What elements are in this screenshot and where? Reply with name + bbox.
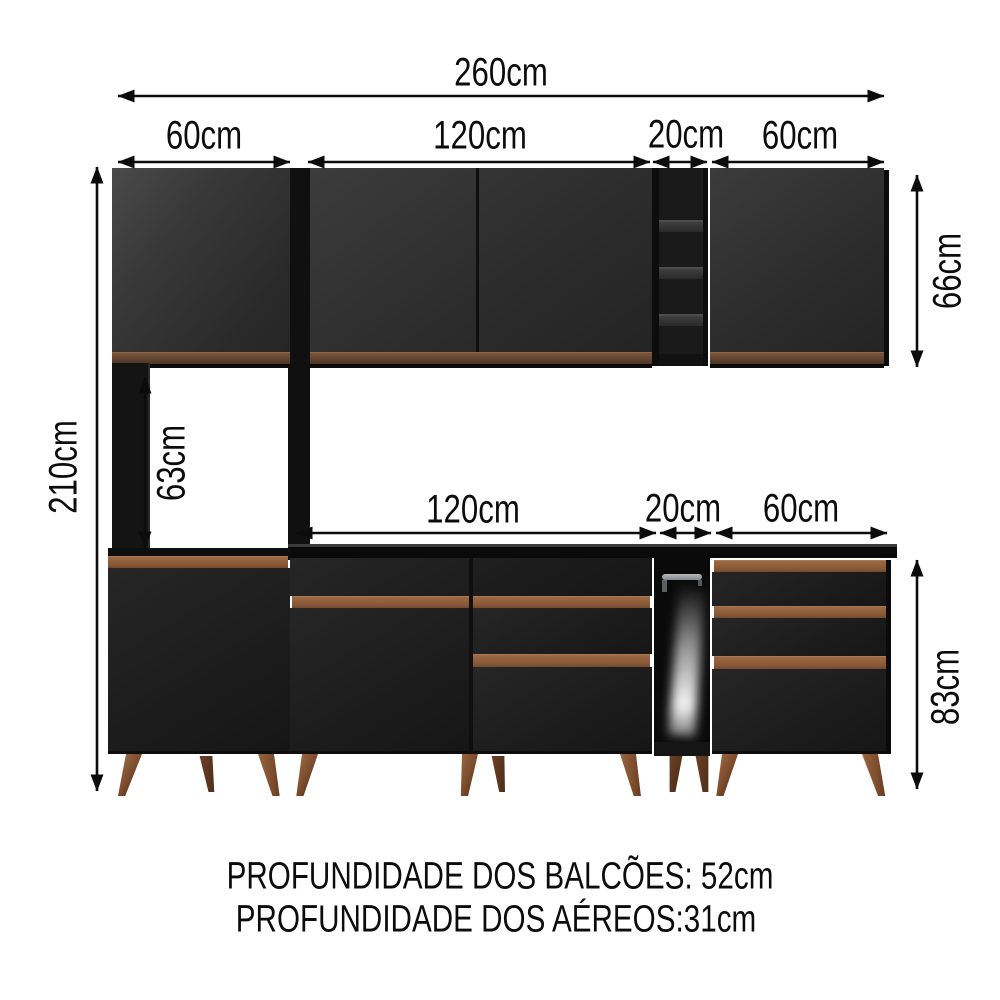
shelf-unit-base (659, 354, 703, 366)
middle-base-handle-strip-lower (473, 654, 650, 668)
middle-base-right-door (473, 667, 652, 754)
dim-tower-opening-height-label: 63cm (150, 414, 195, 512)
towel-rail (662, 574, 702, 580)
dim-base-right-width-label: 60cm (752, 487, 850, 532)
cabinet-leg (860, 754, 892, 796)
shelf-board (659, 220, 703, 232)
upper-middle-door-split (476, 168, 479, 352)
cabinet-leg (490, 756, 510, 792)
depth-note-uppers: PROFUNDIDADE DOS AÉREOS:31cm (162, 899, 829, 942)
dim-niche-width-label: 20cm (634, 487, 732, 532)
dim-upper-cabinet-height-label: 66cm (926, 222, 971, 320)
depth-note-counters: PROFUNDIDADE DOS BALCÕES: 52cm (149, 856, 850, 899)
rail-bracket-left (662, 580, 667, 592)
shelf-board (659, 314, 703, 326)
cabinet-leg (455, 754, 480, 796)
kitchen-cabinet-dimension-diagram: 260cm 60cm 120cm 20cm 60cm 120cm 20cm 60… (0, 0, 1000, 1000)
upper-left-cabinet-door (112, 168, 290, 352)
right-base-drawer-2 (712, 618, 888, 656)
middle-base-split (469, 558, 473, 754)
tower-side-panel (288, 168, 310, 560)
dim-upper-left-width-label: 60cm (155, 114, 253, 159)
upper-right-cabinet-door (710, 168, 884, 352)
tower-base-door (108, 568, 290, 754)
cabinet-leg (618, 754, 648, 796)
cabinet-leg (290, 754, 320, 796)
niche (654, 558, 710, 742)
upper-middle-cabinet-doors (310, 168, 652, 352)
dim-total-width-label: 260cm (441, 51, 561, 96)
upper-shelf-unit (652, 168, 708, 366)
shelf-board (659, 267, 703, 279)
middle-base-left-door (290, 608, 469, 754)
right-base-handle-strip-low (714, 656, 886, 670)
right-base-drawer-1 (712, 572, 888, 606)
middle-base-right-drawer (473, 608, 652, 654)
dim-base-cabinet-height-label: 83cm (924, 638, 969, 736)
dim-total-height-label: 210cm (42, 407, 87, 527)
countertop (288, 544, 897, 558)
dim-counter-width-label: 120cm (413, 488, 533, 533)
right-base-side-edge (886, 560, 891, 754)
cabinet-leg (710, 754, 740, 796)
niche-light-beam (669, 583, 706, 736)
dim-upper-shelf-width-label: 20cm (637, 113, 735, 158)
upper-middle-cabinet-base (310, 364, 652, 368)
cabinet-leg (198, 756, 220, 792)
tower-opening-left-frame (112, 363, 150, 557)
tower-base-top-edge (108, 548, 290, 556)
dim-upper-middle-width-label: 120cm (420, 114, 540, 159)
cabinet-leg (665, 756, 684, 792)
right-base-door (712, 669, 888, 754)
dim-upper-right-width-label: 60cm (751, 114, 849, 159)
cabinet-leg (694, 756, 714, 792)
cabinet-leg (256, 754, 286, 796)
upper-right-side-edge (884, 170, 889, 366)
upper-right-cabinet-base (710, 364, 884, 368)
niche-plinth (654, 742, 710, 756)
cabinet-leg (112, 754, 144, 796)
